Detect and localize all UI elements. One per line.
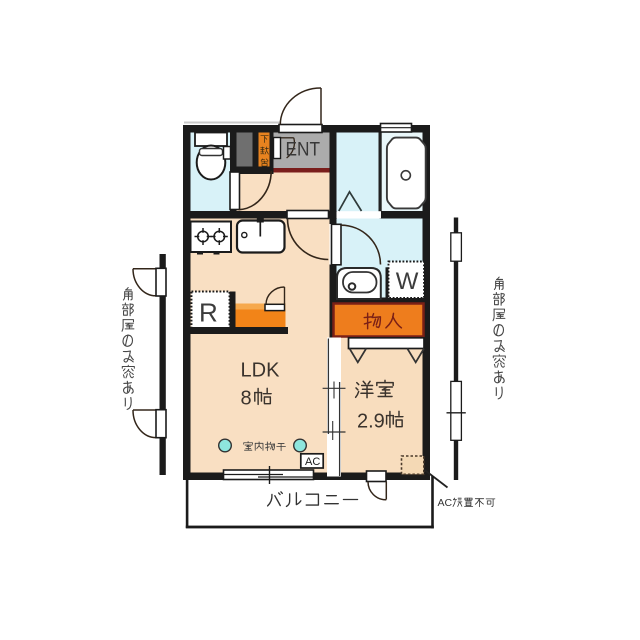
svg-text:8: 8 (241, 388, 252, 410)
svg-text:AC: AC (305, 456, 320, 468)
svg-text:ENT: ENT (286, 139, 321, 161)
svg-text:AC: AC (438, 497, 453, 509)
svg-text:R: R (199, 298, 218, 328)
svg-text:LDK: LDK (241, 360, 281, 382)
svg-text:W: W (396, 268, 419, 295)
svg-text:2.9: 2.9 (357, 411, 385, 433)
